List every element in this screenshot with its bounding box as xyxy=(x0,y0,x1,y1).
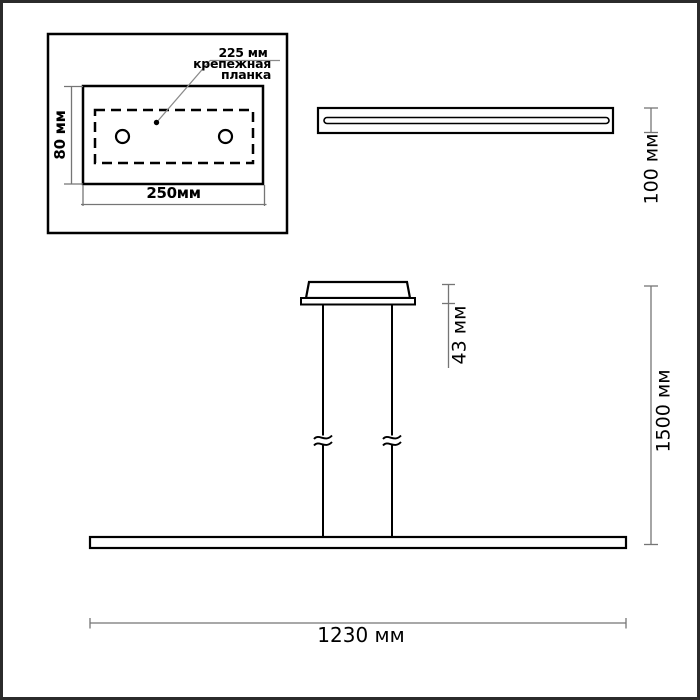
mounting-plank-label: крепежная планка xyxy=(193,59,271,80)
plate-outline xyxy=(83,86,263,184)
side-view xyxy=(318,108,658,133)
light-bar-outline xyxy=(90,537,626,548)
dim-label-1230: 1230 мм xyxy=(317,624,404,646)
canopy-outline xyxy=(306,282,410,298)
dim-label-250: 250мм xyxy=(146,185,200,202)
dim-label-80: 80 мм xyxy=(52,110,69,159)
dim-100mm-lines xyxy=(644,108,658,133)
canopy-base-plate xyxy=(301,298,415,305)
front-view xyxy=(90,282,658,629)
leader-dot xyxy=(154,120,159,125)
dim-label-43: 43 мм xyxy=(450,305,471,364)
wire-break-marks xyxy=(314,436,401,446)
bar-profile-slot xyxy=(324,118,609,124)
mounting-plank-label-line2: планка xyxy=(193,70,271,81)
linework-layer xyxy=(3,3,700,700)
dim-label-1500: 1500 мм xyxy=(654,369,675,452)
mounting-hole-left xyxy=(116,130,129,143)
suspension-wires xyxy=(323,305,392,538)
mounting-hole-right xyxy=(219,130,232,143)
dim-label-100: 100 мм xyxy=(641,134,662,205)
drawing-canvas: 225 мм крепежная планка 80 мм 250мм 100 … xyxy=(0,0,700,700)
